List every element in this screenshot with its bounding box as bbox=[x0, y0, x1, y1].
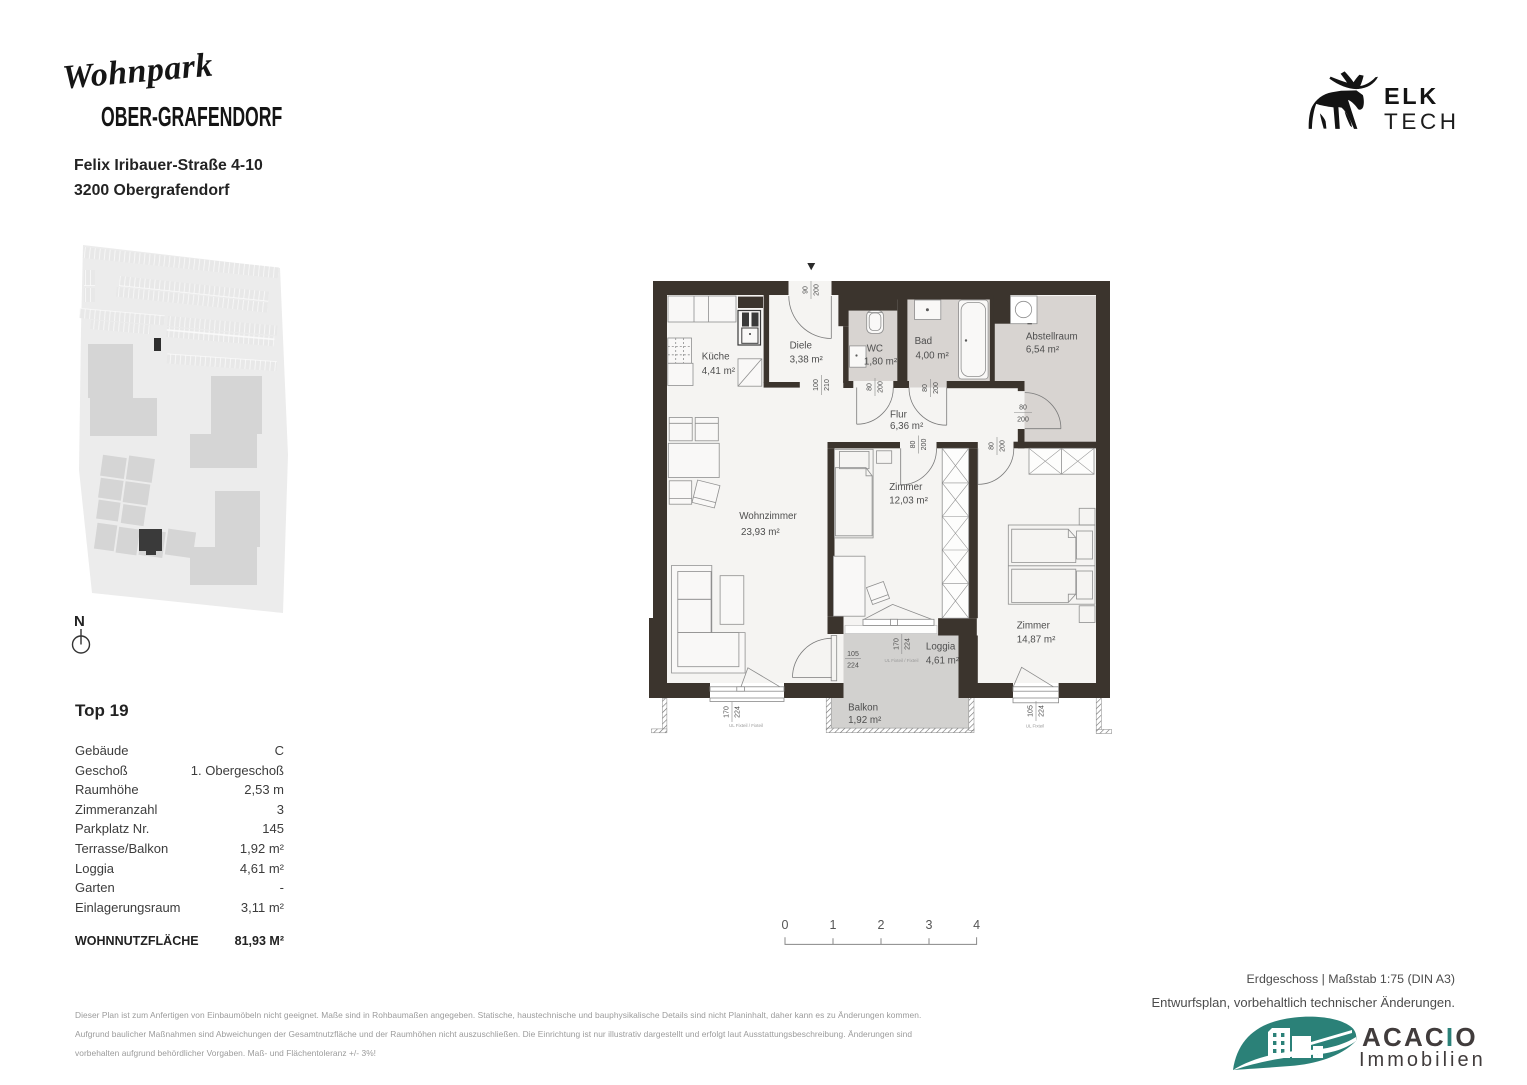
svg-text:2: 2 bbox=[878, 918, 885, 932]
svg-text:1,80 m²: 1,80 m² bbox=[864, 357, 898, 368]
svg-text:UL Fixteil: UL Fixteil bbox=[1026, 724, 1045, 729]
svg-text:200: 200 bbox=[1000, 440, 1007, 452]
svg-text:12,03 m²: 12,03 m² bbox=[889, 495, 928, 506]
svg-text:4,00 m²: 4,00 m² bbox=[916, 351, 950, 362]
svg-text:200: 200 bbox=[933, 382, 940, 394]
svg-text:Küche: Küche bbox=[702, 352, 730, 363]
svg-text:4,61 m²: 4,61 m² bbox=[926, 656, 960, 667]
svg-text:210: 210 bbox=[824, 379, 831, 391]
svg-text:0: 0 bbox=[782, 918, 789, 932]
svg-text:3: 3 bbox=[926, 918, 933, 932]
svg-text:Bad: Bad bbox=[915, 336, 932, 347]
svg-text:Zimmer: Zimmer bbox=[1017, 620, 1051, 631]
svg-text:224: 224 bbox=[904, 638, 911, 650]
svg-text:6,54 m²: 6,54 m² bbox=[1026, 345, 1060, 356]
svg-text:Flur: Flur bbox=[890, 410, 908, 421]
svg-text:Balkon: Balkon bbox=[848, 702, 878, 713]
svg-text:14,87 m²: 14,87 m² bbox=[1017, 635, 1056, 646]
svg-text:170: 170 bbox=[893, 638, 900, 650]
svg-text:UL Fixteil / Fixteil: UL Fixteil / Fixteil bbox=[729, 723, 763, 728]
svg-text:UL Fixteil / Fixteil: UL Fixteil / Fixteil bbox=[884, 658, 918, 663]
svg-text:23,93 m²: 23,93 m² bbox=[741, 527, 780, 538]
svg-text:6,36 m²: 6,36 m² bbox=[890, 421, 924, 432]
svg-text:90: 90 bbox=[803, 286, 810, 294]
svg-text:105: 105 bbox=[1028, 705, 1035, 717]
svg-text:4,41 m²: 4,41 m² bbox=[702, 366, 736, 377]
svg-text:80: 80 bbox=[867, 383, 874, 391]
svg-text:200: 200 bbox=[814, 284, 821, 296]
svg-text:4: 4 bbox=[973, 918, 980, 932]
svg-text:Abstellraum: Abstellraum bbox=[1026, 331, 1078, 342]
svg-text:Wohnzimmer: Wohnzimmer bbox=[739, 511, 797, 522]
svg-text:224: 224 bbox=[847, 663, 859, 670]
svg-text:1,92 m²: 1,92 m² bbox=[848, 715, 882, 726]
svg-text:1: 1 bbox=[830, 918, 837, 932]
svg-text:170: 170 bbox=[724, 706, 731, 718]
svg-text:80: 80 bbox=[989, 442, 996, 450]
svg-text:224: 224 bbox=[735, 706, 742, 718]
svg-text:80: 80 bbox=[910, 441, 917, 449]
svg-text:224: 224 bbox=[1039, 705, 1046, 717]
svg-text:Loggia: Loggia bbox=[926, 642, 956, 653]
svg-text:105: 105 bbox=[847, 651, 859, 658]
svg-text:3,38 m²: 3,38 m² bbox=[790, 354, 824, 365]
svg-text:100: 100 bbox=[813, 379, 820, 391]
svg-text:200: 200 bbox=[1017, 417, 1029, 424]
svg-text:200: 200 bbox=[921, 439, 928, 451]
svg-text:Diele: Diele bbox=[790, 340, 813, 351]
svg-text:80: 80 bbox=[1019, 405, 1027, 412]
svg-text:200: 200 bbox=[878, 381, 885, 393]
svg-text:Zimmer: Zimmer bbox=[889, 482, 923, 493]
svg-text:WC: WC bbox=[867, 343, 883, 354]
svg-text:80: 80 bbox=[922, 384, 929, 392]
